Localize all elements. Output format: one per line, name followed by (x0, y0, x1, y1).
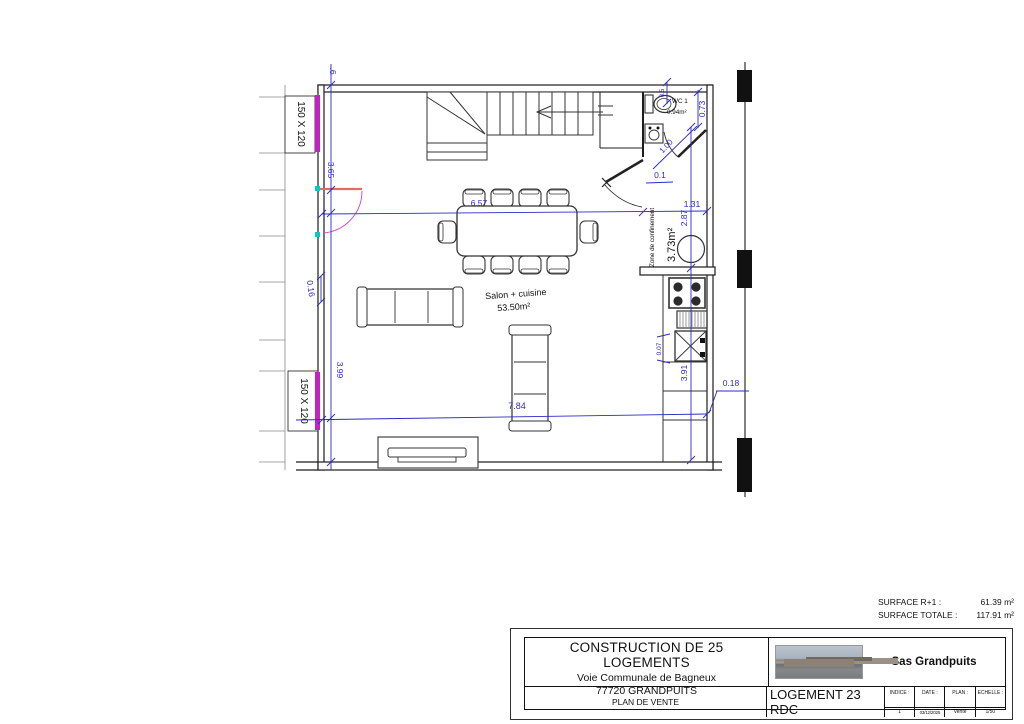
plan-column: PLAN : Vente (945, 687, 975, 717)
dim-0-1: 0.1 (654, 170, 666, 180)
surface-summary: SURFACE R+1 : 61.39 m² SURFACE TOTALE : … (878, 596, 1014, 622)
door-swing-arc (323, 191, 362, 233)
surface-total-label: SURFACE TOTALE : (878, 609, 957, 622)
date-column: DATE : 03/12/2025 (915, 687, 945, 717)
dim-0-18: 0.18 (723, 378, 740, 388)
floorplan-drawing: 150 X 120 150 X 120 (0, 0, 1024, 724)
chair (547, 256, 569, 274)
company-name: Sas Grandpuits (863, 656, 1005, 668)
dining-table (457, 206, 577, 256)
upper-window-glass (315, 95, 320, 152)
title-block: CONSTRUCTION DE 25 LOGEMENTS Voie Commun… (510, 628, 1013, 720)
salon-area: 53.50m² (497, 301, 531, 313)
zone-name: Zone de confinement (649, 208, 656, 267)
surface-total-value: 117.91 m² (976, 609, 1014, 622)
indice-label: INDICE : (885, 687, 914, 708)
sofa-vertical (509, 325, 551, 431)
lower-window-glass (315, 372, 320, 430)
plan-de-vente-page: 150 X 120 150 X 120 (0, 0, 1024, 724)
echelle-value: 1/50 (976, 708, 1005, 717)
wall-fill-middle (737, 250, 752, 288)
chair (519, 189, 541, 207)
dim-7-84: 7.84 (508, 401, 526, 411)
dim-0-73: 0.73 (697, 100, 707, 117)
grip-square-bottom (315, 232, 320, 237)
document-type: PLAN DE VENTE (525, 687, 767, 717)
surface-r1-value: 61.39 m² (980, 596, 1014, 609)
chair (491, 256, 513, 274)
surface-r1-label: SURFACE R+1 : (878, 596, 941, 609)
wall-fill-bottom (737, 438, 752, 492)
wc-area: 0.94m² (667, 109, 687, 116)
sofa-horizontal (357, 287, 463, 327)
chair (463, 256, 485, 274)
surface-total-row: SURFACE TOTALE : 117.91 m² (878, 609, 1014, 622)
chair (547, 189, 569, 207)
zone-door-leaf (606, 160, 643, 182)
dim-0-5: 0.5 (660, 88, 666, 97)
dim-0-07: 0.07 (656, 342, 663, 355)
salon-name: Salon + cuisine (485, 287, 547, 301)
plan-value: Vente (945, 708, 974, 717)
dim-2-87: 2.87 (679, 209, 689, 226)
chair (580, 221, 598, 243)
date-value: 03/12/2025 (915, 708, 944, 717)
project-info: CONSTRUCTION DE 25 LOGEMENTS Voie Commun… (525, 638, 769, 686)
company-cell: Sas Grandpuits (769, 638, 1005, 686)
upper-window-label: 150 X 120 (295, 101, 306, 147)
chair (519, 256, 541, 274)
dim-0-16: 0.16 (305, 280, 317, 298)
grip-square-top (315, 186, 320, 191)
date-label: DATE : (915, 687, 944, 708)
unit-name: LOGEMENT 23 RDC (767, 687, 885, 717)
surface-r1-row: SURFACE R+1 : 61.39 m² (878, 596, 1014, 609)
entry-door-leaf (678, 130, 706, 157)
window-markers: 150 X 120 150 X 120 (285, 95, 320, 431)
indice-value: 1 (885, 708, 914, 717)
dining-table-set (438, 189, 598, 274)
plan-label: PLAN : (945, 687, 974, 708)
dim-3-91: 3.91 (679, 364, 689, 381)
wall-fill-top (737, 70, 752, 102)
chair (438, 221, 456, 243)
echelle-label: ECHELLE : (976, 687, 1005, 708)
project-address-1: Voie Communale de Bagneux (525, 672, 768, 684)
lower-window-label: 150 X 120 (298, 378, 309, 424)
neighbor-wall-markers (737, 62, 752, 497)
chair (491, 189, 513, 207)
dim-3-99: 3.99 (335, 362, 345, 379)
project-title: CONSTRUCTION DE 25 LOGEMENTS (525, 640, 768, 670)
dim-3-65: 3.65 (326, 162, 336, 179)
staircase (427, 92, 613, 160)
title-block-frame: CONSTRUCTION DE 25 LOGEMENTS Voie Commun… (524, 637, 1006, 710)
dim-top-partial: .6 (328, 67, 338, 74)
indice-column: INDICE : 1 (885, 687, 915, 717)
tv-stand (378, 437, 478, 468)
dim-6-57: 6.57 (471, 198, 488, 208)
echelle-column: ECHELLE : 1/50 (976, 687, 1005, 717)
site-photo (775, 645, 863, 679)
dim-1-00: 1.00 (658, 137, 676, 155)
toilet-tank (645, 95, 653, 113)
left-facade-lines (259, 85, 285, 470)
dim-1-31: 1.31 (684, 199, 701, 209)
wc-name: WC 1 (672, 98, 688, 105)
zone-area: 3.73m² (666, 227, 678, 262)
